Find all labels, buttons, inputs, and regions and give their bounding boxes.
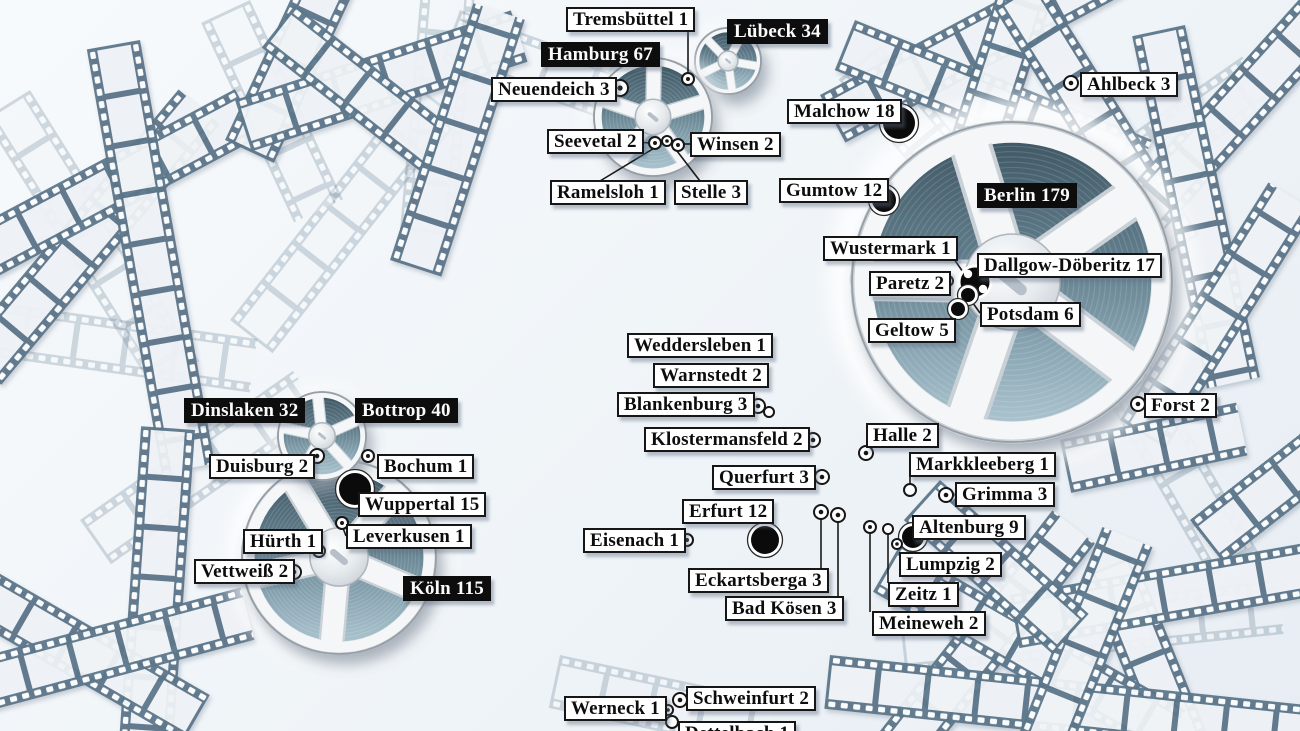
city-label-forst: Forst 2 bbox=[1144, 393, 1217, 418]
city-label-klostermansfeld: Klostermansfeld 2 bbox=[644, 427, 810, 452]
city-label-lumpzig: Lumpzig 2 bbox=[899, 552, 1002, 577]
city-label-paretz: Paretz 2 bbox=[869, 271, 951, 296]
city-label-bottrop: Bottrop 40 bbox=[355, 398, 458, 423]
city-label-wuppertal: Wuppertal 15 bbox=[358, 492, 486, 517]
city-label-malchow: Malchow 18 bbox=[787, 99, 902, 124]
city-label-potsdam: Potsdam 6 bbox=[980, 302, 1081, 327]
film-locations-map: Tremsbüttel 1Lübeck 34Hamburg 67Neuendei… bbox=[0, 0, 1300, 731]
city-label-dallgow-döberitz: Dallgow-Döberitz 17 bbox=[977, 253, 1162, 278]
city-label-grimma: Grimma 3 bbox=[955, 482, 1055, 507]
city-labels-layer: Tremsbüttel 1Lübeck 34Hamburg 67Neuendei… bbox=[0, 0, 1300, 731]
city-label-hamburg: Hamburg 67 bbox=[541, 42, 660, 67]
city-label-halle: Halle 2 bbox=[866, 423, 939, 448]
city-label-seevetal: Seevetal 2 bbox=[547, 129, 644, 154]
city-label-stelle: Stelle 3 bbox=[674, 180, 748, 205]
city-label-werneck: Werneck 1 bbox=[564, 696, 667, 721]
city-label-berlin: Berlin 179 bbox=[977, 183, 1077, 208]
city-label-bochum: Bochum 1 bbox=[377, 454, 474, 479]
city-label-gumtow: Gumtow 12 bbox=[779, 178, 889, 203]
city-label-köln: Köln 115 bbox=[403, 576, 491, 601]
city-label-warnstedt: Warnstedt 2 bbox=[653, 363, 769, 388]
city-label-hürth: Hürth 1 bbox=[243, 529, 323, 554]
city-label-neuendeich: Neuendeich 3 bbox=[491, 77, 617, 102]
city-label-eckartsberga: Eckartsberga 3 bbox=[688, 568, 829, 593]
city-label-winsen: Winsen 2 bbox=[690, 132, 781, 157]
city-label-geltow: Geltow 5 bbox=[868, 318, 956, 343]
city-label-dinslaken: Dinslaken 32 bbox=[184, 398, 305, 423]
city-label-ahlbeck: Ahlbeck 3 bbox=[1080, 72, 1178, 97]
city-label-tremsbüttel: Tremsbüttel 1 bbox=[566, 7, 695, 32]
city-label-markkleeberg: Markkleeberg 1 bbox=[909, 452, 1056, 477]
city-label-querfurt: Querfurt 3 bbox=[712, 465, 816, 490]
city-label-ramelsloh: Ramelsloh 1 bbox=[550, 180, 666, 205]
city-label-dettelbach: Dettelbach 1 bbox=[678, 721, 796, 731]
city-label-zeitz: Zeitz 1 bbox=[888, 582, 959, 607]
city-label-meineweh: Meineweh 2 bbox=[872, 611, 986, 636]
city-label-duisburg: Duisburg 2 bbox=[209, 454, 315, 479]
city-label-schweinfurt: Schweinfurt 2 bbox=[686, 686, 816, 711]
city-label-erfurt: Erfurt 12 bbox=[682, 499, 774, 524]
city-label-lübeck: Lübeck 34 bbox=[727, 19, 828, 44]
city-label-altenburg: Altenburg 9 bbox=[912, 515, 1026, 540]
city-label-leverkusen: Leverkusen 1 bbox=[346, 524, 472, 549]
city-label-bad-kösen: Bad Kösen 3 bbox=[725, 596, 844, 621]
city-label-eisenach: Eisenach 1 bbox=[583, 528, 686, 553]
city-label-weddersleben: Weddersleben 1 bbox=[627, 333, 773, 358]
city-label-wustermark: Wustermark 1 bbox=[823, 236, 958, 261]
city-label-vettweiß: Vettweiß 2 bbox=[194, 559, 295, 584]
city-label-blankenburg: Blankenburg 3 bbox=[617, 392, 755, 417]
